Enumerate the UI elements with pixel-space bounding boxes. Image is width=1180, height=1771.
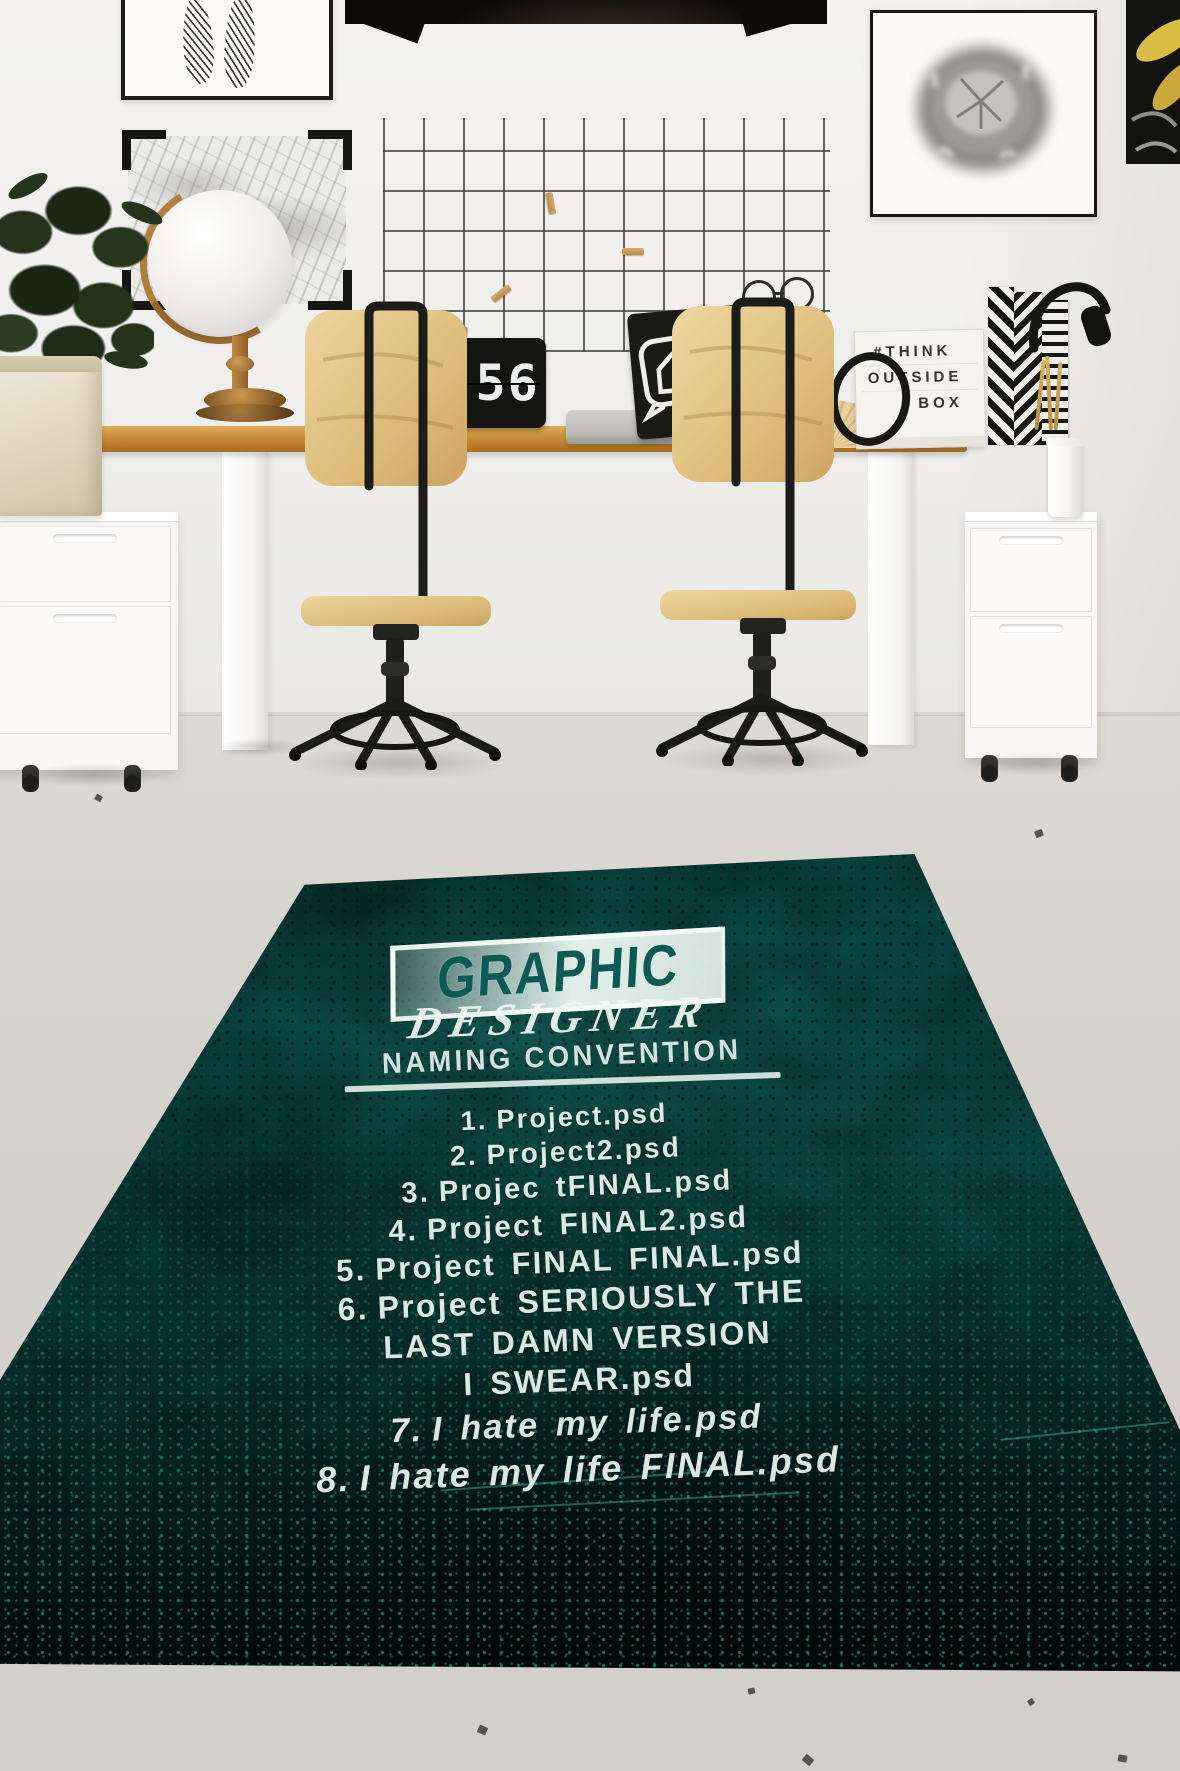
drawer-handle (999, 536, 1063, 544)
cabinet-shadow (0, 758, 190, 792)
print-clip-corner (122, 130, 166, 170)
sand-dollar-drawing (873, 13, 1094, 214)
gold-leaf-poster (1126, 0, 1180, 164)
fern-print-frame (121, 0, 333, 100)
fern-illustration (223, 0, 258, 89)
drawer-handle (999, 624, 1063, 632)
right-drawer-unit (965, 512, 1097, 758)
seat-bracket (740, 618, 786, 634)
drawer (0, 606, 171, 734)
chair-backrest (305, 310, 467, 486)
drawer-handle (53, 534, 117, 542)
gold-leaf-art (1126, 0, 1180, 164)
seat-bracket (373, 624, 419, 640)
paper-cup (1048, 438, 1083, 517)
headphones-icon (1022, 248, 1122, 358)
chair-backrest (672, 306, 834, 482)
drawer (970, 528, 1091, 612)
desk-leg (222, 450, 268, 750)
desk-chair-right (630, 296, 890, 766)
chair-feet (656, 745, 868, 766)
drawer (0, 526, 171, 602)
height-collar (381, 662, 409, 676)
eyeglasses-bridge (774, 292, 784, 295)
globe-knob (226, 356, 254, 372)
drawer (970, 616, 1091, 728)
foot-ring (700, 709, 824, 743)
chair-feet (289, 749, 501, 770)
workspace-photo: 9 56 # #THINK OUTSIDE BOX (0, 0, 1180, 1771)
drawer-handle (53, 614, 117, 622)
cabinet-shadow (950, 748, 1120, 780)
bag-rolled-edge (0, 356, 102, 372)
rug-list: 1.Project.psd 2.Project2.psd 3.Projec tF… (114, 1083, 1029, 1510)
patterned-book (988, 287, 1014, 445)
sand-dollar-frame (870, 10, 1097, 217)
clothespin (622, 248, 644, 255)
fern-illustration (180, 0, 216, 85)
rug-print: GRAPHIC DESIGNER NAMING CONVENTION 1.Pro… (107, 918, 1029, 1511)
print-clip-corner (308, 130, 352, 170)
left-drawer-unit (0, 512, 178, 770)
chair-seat (660, 590, 856, 620)
desk-chair-left (265, 300, 525, 770)
paper-bag-planter (0, 356, 102, 516)
height-collar (748, 656, 776, 670)
foot-ring (333, 713, 457, 747)
floor-chip (1117, 1754, 1127, 1762)
cup-lid (1046, 438, 1085, 447)
